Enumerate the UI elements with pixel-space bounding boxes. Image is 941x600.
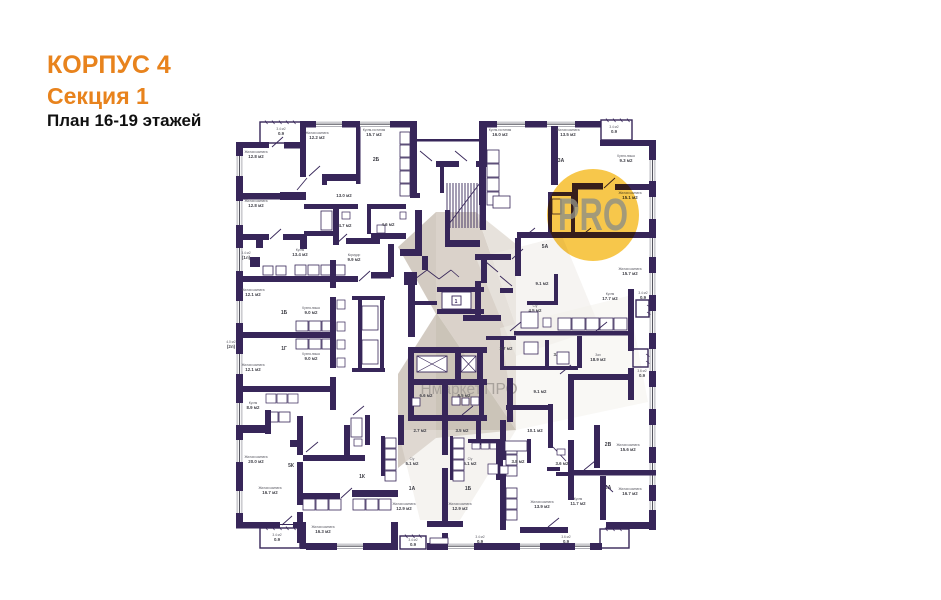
svg-text:13.5 м2: 13.5 м2 (560, 132, 576, 137)
svg-text:0.9: 0.9 (611, 129, 618, 134)
svg-text:(2л): (2л) (227, 344, 236, 349)
svg-text:1К: 1К (359, 474, 366, 480)
svg-text:12.1 м2: 12.1 м2 (245, 292, 261, 297)
svg-text:12.2 м2: 12.2 м2 (309, 135, 325, 140)
svg-text:9.1 м2: 9.1 м2 (535, 281, 549, 286)
svg-text:4.7 м2: 4.7 м2 (338, 223, 352, 228)
svg-text:6.6 м2: 6.6 м2 (419, 393, 433, 398)
svg-text:(1л): (1л) (242, 255, 251, 260)
svg-text:2В: 2В (605, 442, 612, 448)
svg-text:0.9: 0.9 (640, 295, 647, 300)
svg-text:11.7 м2: 11.7 м2 (570, 501, 586, 506)
svg-text:15.7 м2: 15.7 м2 (366, 132, 382, 137)
svg-text:15.6 м2: 15.6 м2 (620, 447, 636, 452)
svg-text:16.7 м2: 16.7 м2 (262, 490, 278, 495)
svg-text:13.0 м2: 13.0 м2 (336, 193, 352, 198)
svg-text:0.9: 0.9 (477, 539, 484, 544)
svg-text:9.0 м2: 9.0 м2 (304, 356, 318, 361)
svg-text:5.1 м2: 5.1 м2 (463, 461, 477, 466)
svg-text:12.9 м2: 12.9 м2 (396, 506, 412, 511)
svg-text:1Б: 1Б (281, 310, 288, 316)
svg-text:13.4 м2: 13.4 м2 (292, 252, 308, 257)
svg-text:16.0 м2: 16.0 м2 (492, 132, 508, 137)
svg-text:0.9: 0.9 (410, 542, 417, 547)
svg-text:16.7 м2: 16.7 м2 (622, 491, 638, 496)
svg-text:12.8 м2: 12.8 м2 (248, 203, 264, 208)
svg-text:9.3 м2: 9.3 м2 (619, 158, 633, 163)
svg-text:17.7 м2: 17.7 м2 (602, 296, 618, 301)
svg-text:3А: 3А (558, 158, 565, 164)
svg-text:20.0 м2: 20.0 м2 (248, 459, 264, 464)
svg-text:2.7 м2: 2.7 м2 (413, 428, 427, 433)
svg-text:1Б: 1Б (465, 486, 472, 492)
svg-text:15.7 м2: 15.7 м2 (622, 271, 638, 276)
svg-text:9.0 м2: 9.0 м2 (304, 310, 318, 315)
svg-text:10.1 м2: 10.1 м2 (527, 428, 543, 433)
svg-text:9.1 м2: 9.1 м2 (533, 389, 547, 394)
svg-text:0.9: 0.9 (563, 539, 570, 544)
svg-text:12.9 м2: 12.9 м2 (452, 506, 468, 511)
svg-text:12.1 м2: 12.1 м2 (245, 367, 261, 372)
svg-text:1А: 1А (409, 486, 416, 492)
svg-text:4.6 м2: 4.6 м2 (381, 222, 395, 227)
svg-text:3.7 м2: 3.7 м2 (499, 346, 513, 351)
svg-text:12.8 м2: 12.8 м2 (248, 154, 264, 159)
svg-text:5А: 5А (542, 244, 549, 250)
svg-text:18.9 м2: 18.9 м2 (590, 357, 606, 362)
svg-text:5.1 м2: 5.1 м2 (405, 461, 419, 466)
svg-text:5К: 5К (288, 463, 295, 469)
svg-text:2Б: 2Б (373, 157, 380, 163)
svg-text:1: 1 (455, 299, 458, 305)
svg-text:9.9 м2: 9.9 м2 (347, 257, 361, 262)
svg-text:PRO: PRO (558, 191, 628, 240)
svg-text:0.9: 0.9 (639, 373, 646, 378)
svg-text:8.9 м2: 8.9 м2 (246, 405, 260, 410)
svg-text:3.5 м2: 3.5 м2 (455, 428, 469, 433)
svg-text:16.3 м2: 16.3 м2 (315, 529, 331, 534)
svg-text:1Г: 1Г (281, 346, 287, 352)
svg-text:3.6 м2: 3.6 м2 (555, 461, 569, 466)
svg-text:0.9: 0.9 (278, 131, 285, 136)
svg-text:0.9: 0.9 (274, 537, 281, 542)
svg-text:3.8 м2: 3.8 м2 (511, 459, 525, 464)
svg-text:13.9 м2: 13.9 м2 (534, 504, 550, 509)
